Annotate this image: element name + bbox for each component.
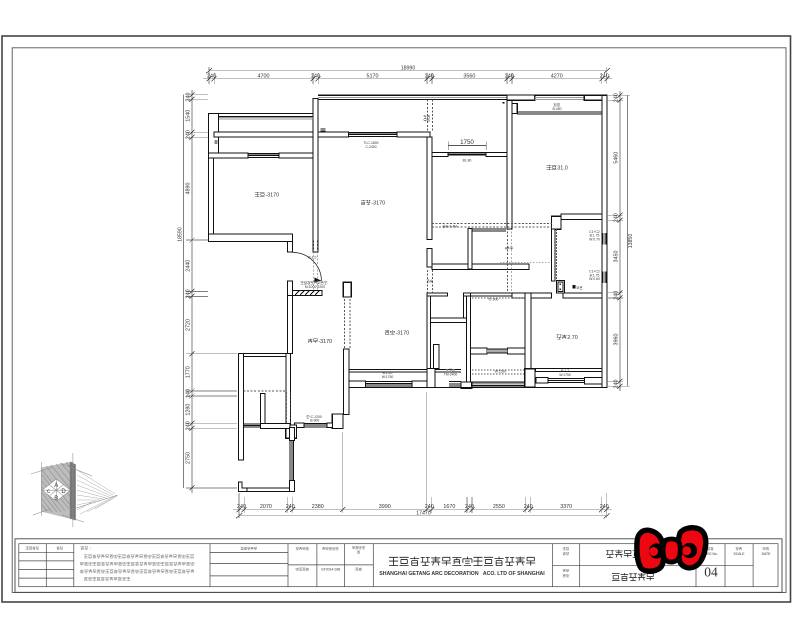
svg-text:2070: 2070: [260, 504, 272, 510]
svg-text:240: 240: [600, 504, 609, 510]
svg-text:240: 240: [505, 74, 514, 80]
svg-text:c: c: [47, 489, 50, 495]
svg-text:B-900: B-900: [310, 419, 319, 423]
svg-text:-3170: -3170: [265, 193, 279, 199]
svg-text:31.0: 31.0: [557, 166, 568, 172]
svg-text:240: 240: [465, 504, 474, 510]
svg-text:-3170: -3170: [318, 339, 332, 345]
svg-text:A: A: [54, 483, 58, 489]
svg-text:W:0.70: W:0.70: [589, 237, 600, 241]
svg-text:3450: 3450: [613, 251, 619, 263]
svg-text:W:1520: W:1520: [495, 370, 507, 374]
svg-text::: :: [90, 546, 91, 551]
svg-text:2720: 2720: [185, 319, 191, 331]
svg-text:240: 240: [185, 130, 191, 139]
svg-text:4890: 4890: [185, 183, 191, 195]
svg-text:M:1000*2200: M:1000*2200: [305, 285, 325, 289]
svg-text:2380: 2380: [312, 504, 324, 510]
svg-text:13850: 13850: [628, 234, 634, 249]
svg-text:240: 240: [425, 74, 434, 80]
svg-text:2440: 2440: [185, 260, 191, 272]
svg-text:B: B: [54, 496, 58, 502]
svg-text:240: 240: [613, 213, 619, 222]
svg-text:3990: 3990: [379, 504, 391, 510]
svg-text:3370: 3370: [560, 504, 572, 510]
svg-text::: :: [327, 281, 328, 285]
svg-text:240: 240: [613, 291, 619, 300]
svg-text:1770: 1770: [185, 366, 191, 378]
svg-text:4700: 4700: [258, 74, 270, 80]
svg-text:D: D: [61, 489, 66, 495]
svg-text:B1.80: B1.80: [463, 159, 472, 163]
svg-text:TM-2400: TM-2400: [444, 372, 458, 376]
svg-text:1750: 1750: [460, 139, 474, 146]
svg-text:GT2014-038: GT2014-038: [321, 568, 340, 572]
svg-text:5460: 5460: [613, 152, 619, 164]
svg-text:SHANGHAI GETANG ARC DECORATION: SHANGHAI GETANG ARC DECORATION ACO. LTD …: [379, 571, 545, 577]
svg-text:240: 240: [524, 504, 533, 510]
svg-text:3560: 3560: [463, 74, 475, 80]
svg-text:240: 240: [600, 74, 609, 80]
svg-text:SCALE: SCALE: [733, 552, 745, 556]
svg-text:2750: 2750: [185, 452, 191, 464]
svg-text:5170: 5170: [367, 74, 379, 80]
svg-text:2550: 2550: [493, 504, 505, 510]
svg-text:M-1.0: M-1.0: [308, 256, 317, 260]
svg-text:18990: 18990: [401, 65, 416, 71]
svg-text:240: 240: [613, 380, 619, 389]
svg-text:W:0.60: W:0.60: [589, 277, 600, 281]
svg-text:240: 240: [613, 93, 619, 102]
svg-text:DATE: DATE: [762, 552, 772, 556]
svg-text:C-2400: C-2400: [365, 145, 376, 149]
svg-text:W:1750: W:1750: [382, 375, 394, 379]
svg-text:1540: 1540: [185, 110, 191, 122]
svg-text:H-2.4M: H-2.4M: [446, 225, 457, 229]
svg-text:-3170: -3170: [395, 331, 409, 337]
svg-text:17470: 17470: [416, 511, 431, 517]
svg-text:240: 240: [237, 504, 246, 510]
svg-text:240: 240: [311, 74, 320, 80]
svg-text:B-450: B-450: [552, 107, 561, 111]
svg-text:1670: 1670: [443, 504, 455, 510]
svg-text:04: 04: [704, 565, 718, 580]
svg-text:240: 240: [185, 93, 191, 102]
svg-text:-3170: -3170: [371, 201, 385, 207]
svg-text:240: 240: [185, 421, 191, 430]
svg-text:240: 240: [207, 74, 216, 80]
svg-text:18590: 18590: [178, 227, 184, 242]
svg-text:240: 240: [185, 289, 191, 298]
svg-text:240: 240: [286, 504, 295, 510]
svg-text:4270: 4270: [551, 74, 563, 80]
svg-text:W:1750: W:1750: [559, 373, 571, 377]
svg-text:240: 240: [425, 504, 434, 510]
svg-text:2.70: 2.70: [567, 335, 578, 341]
svg-text:140: 140: [185, 389, 191, 398]
svg-text:3960: 3960: [613, 334, 619, 346]
svg-text::900: :900: [492, 297, 499, 301]
svg-text:1280: 1280: [185, 404, 191, 416]
